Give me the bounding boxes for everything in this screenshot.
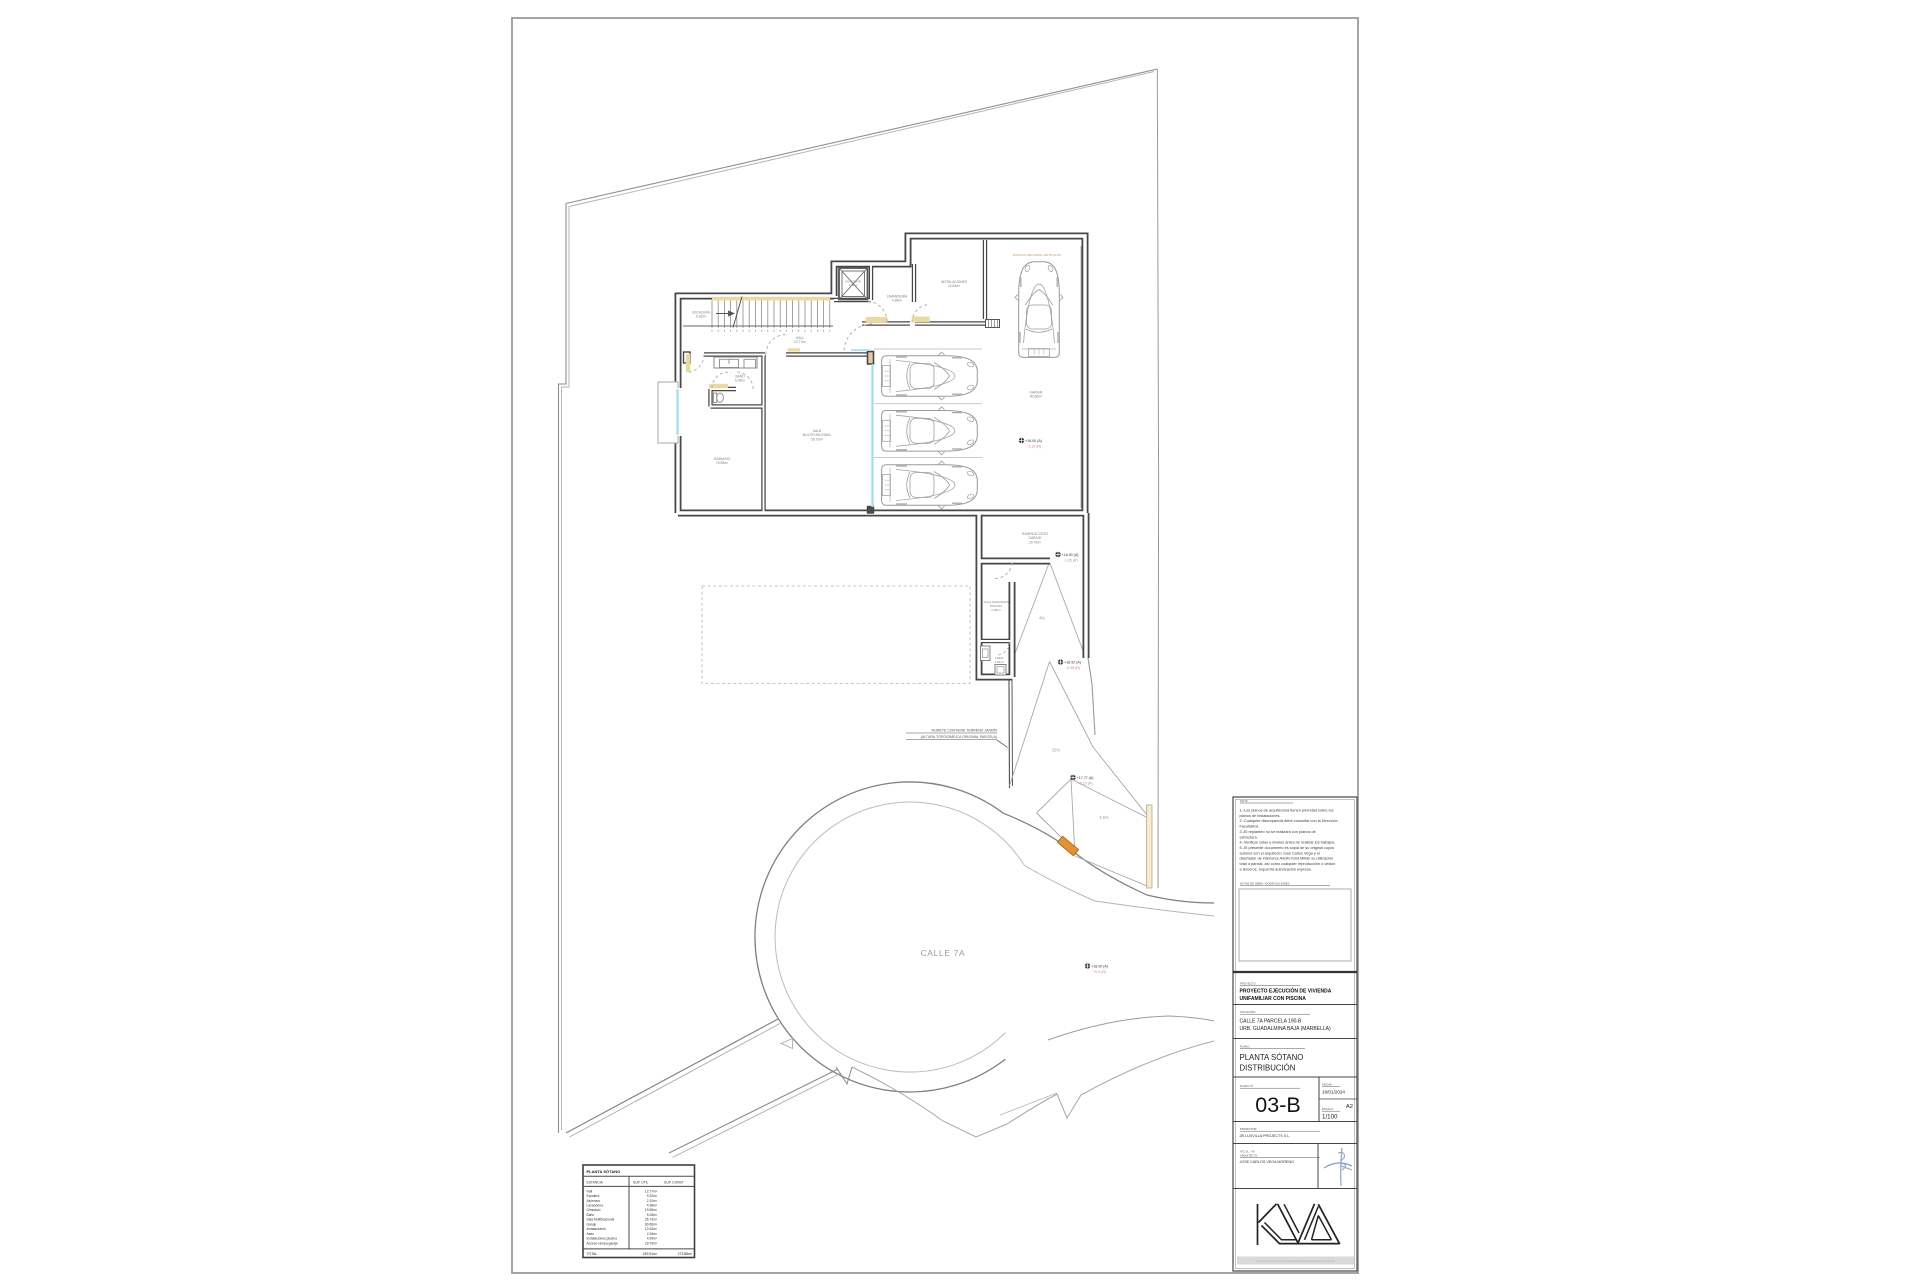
svg-text:PLANO:: PLANO:: [1240, 1045, 1250, 1049]
svg-text:4.99m²: 4.99m²: [991, 608, 1001, 612]
svg-text:UNIFAMILIAR CON PISCINA: UNIFAMILIAR CON PISCINA: [1240, 996, 1307, 1002]
svg-text:19.55m²: 19.55m²: [716, 461, 729, 465]
svg-text:4%: 4%: [1039, 616, 1045, 621]
svg-text:2.10m²: 2.10m²: [647, 1199, 658, 1203]
svg-text:Sala Multifuncional: Sala Multifuncional: [587, 1218, 615, 1222]
svg-text:Facultativa.: Facultativa.: [1240, 825, 1260, 829]
svg-text:MURETE CONTIENE TERRENO JARDÍN: MURETE CONTIENE TERRENO JARDÍN: [932, 729, 998, 733]
svg-text:TOTAL: TOTAL: [587, 1252, 598, 1256]
svg-text:AT.COL. / Nº:: AT.COL. / Nº:: [1240, 1150, 1256, 1154]
svg-text:+16.00 (A): +16.00 (A): [1062, 553, 1079, 557]
svg-text:4.38m²: 4.38m²: [892, 299, 903, 303]
svg-text:ESCALA:: ESCALA:: [1322, 1107, 1334, 1111]
svg-text:JOSE CARLOS VEGA MORENO: JOSE CARLOS VEGA MORENO: [1240, 1160, 1295, 1164]
svg-text:273.88m²: 273.88m²: [678, 1252, 693, 1256]
svg-text:+18.00 (A): +18.00 (A): [1091, 964, 1108, 968]
svg-text:+17.77 (A): +17.77 (A): [1077, 776, 1094, 780]
svg-text:total o parcial, así como cual: total o parcial, así como cualquier repr…: [1240, 862, 1336, 866]
svg-text:SITUACIÓN:: SITUACIÓN:: [1240, 1009, 1256, 1014]
svg-text:ARQUITECTO:: ARQUITECTO:: [1240, 1154, 1258, 1158]
svg-text:80.66m²: 80.66m²: [1030, 395, 1043, 399]
svg-text:9.32m²: 9.32m²: [647, 1194, 658, 1198]
svg-text:2.26m²: 2.26m²: [647, 1232, 658, 1236]
svg-text:PROMOTOR:: PROMOTOR:: [1240, 1127, 1257, 1131]
svg-text:15%: 15%: [1052, 748, 1061, 753]
svg-text:CALLE 7A: CALLE 7A: [921, 948, 966, 958]
svg-text:Gimnasio: Gimnasio: [587, 1208, 601, 1212]
svg-text:planos de instalaciones.: planos de instalaciones.: [1240, 814, 1281, 818]
svg-text:5.28m²: 5.28m²: [647, 1213, 658, 1217]
svg-text:DISTRIBUCIÓN: DISTRIBUCIÓN: [1240, 1064, 1296, 1073]
svg-text:ESTANCIA: ESTANCIA: [587, 1181, 604, 1185]
svg-text:Instalaciones: Instalaciones: [587, 1227, 607, 1231]
svg-text:PLANO Nº:: PLANO Nº:: [1240, 1084, 1254, 1088]
svg-text:NOTA:: NOTA:: [1240, 799, 1249, 803]
svg-text:FECHA:: FECHA:: [1322, 1083, 1332, 1087]
svg-text:-0.08 (R): -0.08 (R): [1066, 666, 1080, 670]
svg-text:-0.23 (R): -0.23 (R): [1079, 782, 1093, 786]
svg-text:80.66m²: 80.66m²: [645, 1222, 658, 1226]
svg-text:2.26m²: 2.26m²: [994, 660, 1003, 664]
svg-text:4.5%: 4.5%: [1099, 815, 1109, 820]
svg-text:Instalaciones piscina: Instalaciones piscina: [587, 1237, 618, 1241]
svg-text:5.-El presente documento es co: 5.-El presente documento es copia de su …: [1240, 846, 1335, 850]
svg-text:1/100: 1/100: [1322, 1114, 1338, 1121]
svg-text:CALLE 7A PARCELA 190-B: CALLE 7A PARCELA 190-B: [1240, 1019, 1303, 1025]
svg-text:5.28m²: 5.28m²: [735, 379, 746, 383]
svg-text:(ALTURA TOPOGRÁFICA ORIGINAL P: (ALTURA TOPOGRÁFICA ORIGINAL PARCELA): [921, 735, 997, 739]
svg-text:2.10m²: 2.10m²: [849, 283, 858, 287]
svg-text:PROYECTO EJECUCION DE VIVIENDA: PROYECTO EJECUCION DE VIVIENDA UNIFAMILI…: [1256, 1260, 1335, 1263]
svg-text:35.73m²: 35.73m²: [645, 1218, 658, 1222]
svg-text:2B LUXVILLA PROJECTS S.L.: 2B LUXVILLA PROJECTS S.L.: [1240, 1134, 1291, 1138]
svg-text:diseñador de interiores Adolfo: diseñador de interiores Adolfo Kind Mill…: [1240, 857, 1334, 861]
svg-text:a terceros, requerirá autoriz: a terceros, requerirá autorización expre…: [1240, 867, 1312, 871]
svg-text:-1.05 (R): -1.05 (R): [1064, 559, 1078, 563]
svg-text:249.51m²: 249.51m²: [643, 1252, 658, 1256]
svg-text:autores son el arquitecto José: autores son el arquitecto José Carlos Ve…: [1240, 851, 1320, 855]
svg-text:URB. GUADALMINA BAJA (MARBELLA: URB. GUADALMINA BAJA (MARBELLA): [1240, 1026, 1331, 1032]
svg-text:29.79m²: 29.79m²: [1029, 540, 1042, 544]
svg-text:-1.10 (R): -1.10 (R): [1027, 445, 1041, 449]
svg-text:Escalera: Escalera: [587, 1194, 600, 1198]
svg-text:03-B: 03-B: [1255, 1093, 1300, 1117]
svg-text:Baño: Baño: [587, 1213, 595, 1217]
svg-text:12.77m²: 12.77m²: [794, 340, 807, 344]
svg-text:Ascensor: Ascensor: [587, 1199, 602, 1203]
svg-text:2.-Cualquier discrepancia debe: 2.-Cualquier discrepancia debe consultar…: [1240, 819, 1338, 823]
svg-text:29.79m²: 29.79m²: [645, 1241, 658, 1245]
svg-text:4.-Verificar cotas y niveles a: 4.-Verificar cotas y niveles antes de re…: [1240, 841, 1336, 845]
svg-text:4.99m²: 4.99m²: [647, 1237, 658, 1241]
svg-text:3.-El replanteo no se realizar: 3.-El replanteo no se realizará con plan…: [1240, 830, 1316, 834]
svg-text:Garaje: Garaje: [587, 1222, 597, 1226]
svg-text:NOTAS DE OBRA - MODIFICACIONES: NOTAS DE OBRA - MODIFICACIONES: [1240, 882, 1290, 886]
svg-text:Lavandería: Lavandería: [587, 1203, 604, 1207]
svg-text:PROYECTO EJECUCIÓN DE VIVIENDA: PROYECTO EJECUCIÓN DE VIVIENDA: [1240, 987, 1332, 995]
svg-text:SUP. CONST: SUP. CONST: [664, 1181, 684, 1185]
svg-text:12.63m²: 12.63m²: [948, 284, 961, 288]
svg-text:Aseo: Aseo: [587, 1232, 595, 1236]
svg-text:12.63m²: 12.63m²: [645, 1227, 658, 1231]
svg-text:4.38m²: 4.38m²: [647, 1203, 658, 1207]
svg-text:PLANTA SÓTANO: PLANTA SÓTANO: [1240, 1053, 1304, 1062]
svg-text:PLANTA SÓTANO: PLANTA SÓTANO: [587, 1169, 621, 1174]
svg-text:+16.92 (A): +16.92 (A): [1064, 660, 1081, 664]
svg-text:35.73m²: 35.73m²: [811, 437, 824, 441]
svg-text:12.77m²: 12.77m²: [645, 1189, 658, 1193]
svg-text:Hall: Hall: [587, 1189, 593, 1193]
svg-text:19.55m²: 19.55m²: [645, 1208, 658, 1212]
svg-text:SUP. ÚTIL: SUP. ÚTIL: [633, 1181, 648, 1185]
svg-text:A2: A2: [1346, 1104, 1353, 1110]
svg-text:ESPACIO RECARGA VEHÍCULOS: ESPACIO RECARGA VEHÍCULOS: [1013, 253, 1061, 257]
svg-text:1.-Los planos de arquitectura: 1.-Los planos de arquitectura tienen pri…: [1240, 809, 1334, 813]
svg-text:+0.0 (R): +0.0 (R): [1093, 970, 1106, 974]
svg-text:PROYECTO:: PROYECTO:: [1240, 982, 1257, 986]
svg-text:16/01/2024: 16/01/2024: [1322, 1090, 1345, 1095]
svg-text:9.32m²: 9.32m²: [696, 315, 707, 319]
svg-text:Acceso rampa-garaje: Acceso rampa-garaje: [587, 1241, 619, 1245]
svg-text:+16.00 (A): +16.00 (A): [1025, 439, 1042, 443]
svg-text:estructura.: estructura.: [1240, 835, 1258, 839]
